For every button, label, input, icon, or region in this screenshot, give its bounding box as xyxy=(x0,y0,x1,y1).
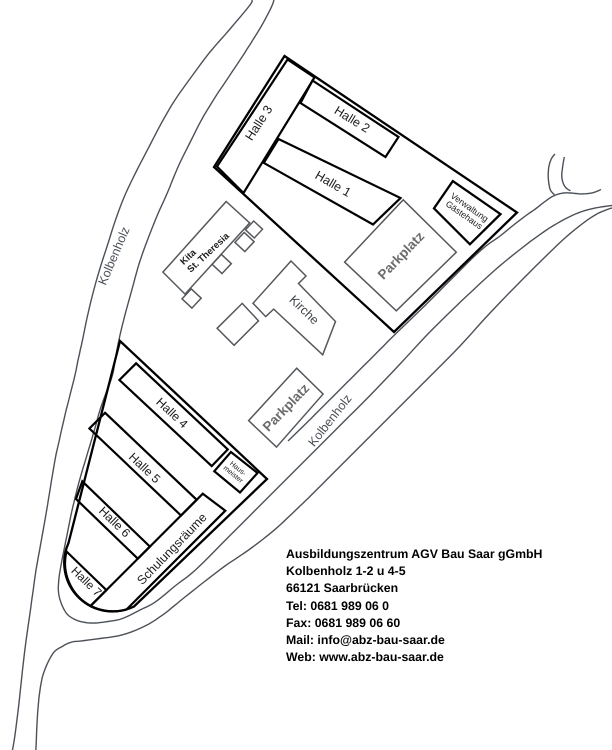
svg-text:Parkplatz: Parkplatz xyxy=(260,381,313,435)
svg-text:Kolbenholz: Kolbenholz xyxy=(95,225,132,287)
svg-text:Halle 3: Halle 3 xyxy=(243,103,276,143)
svg-text:Parkplatz: Parkplatz xyxy=(375,229,428,283)
svg-text:Kirche: Kirche xyxy=(286,293,321,328)
svg-text:Halle 4: Halle 4 xyxy=(153,395,190,431)
svg-text:Halle 7: Halle 7 xyxy=(68,564,104,600)
svg-text:Halle 2: Halle 2 xyxy=(332,103,373,135)
svg-text:Schulungsräume: Schulungsräume xyxy=(134,510,209,587)
